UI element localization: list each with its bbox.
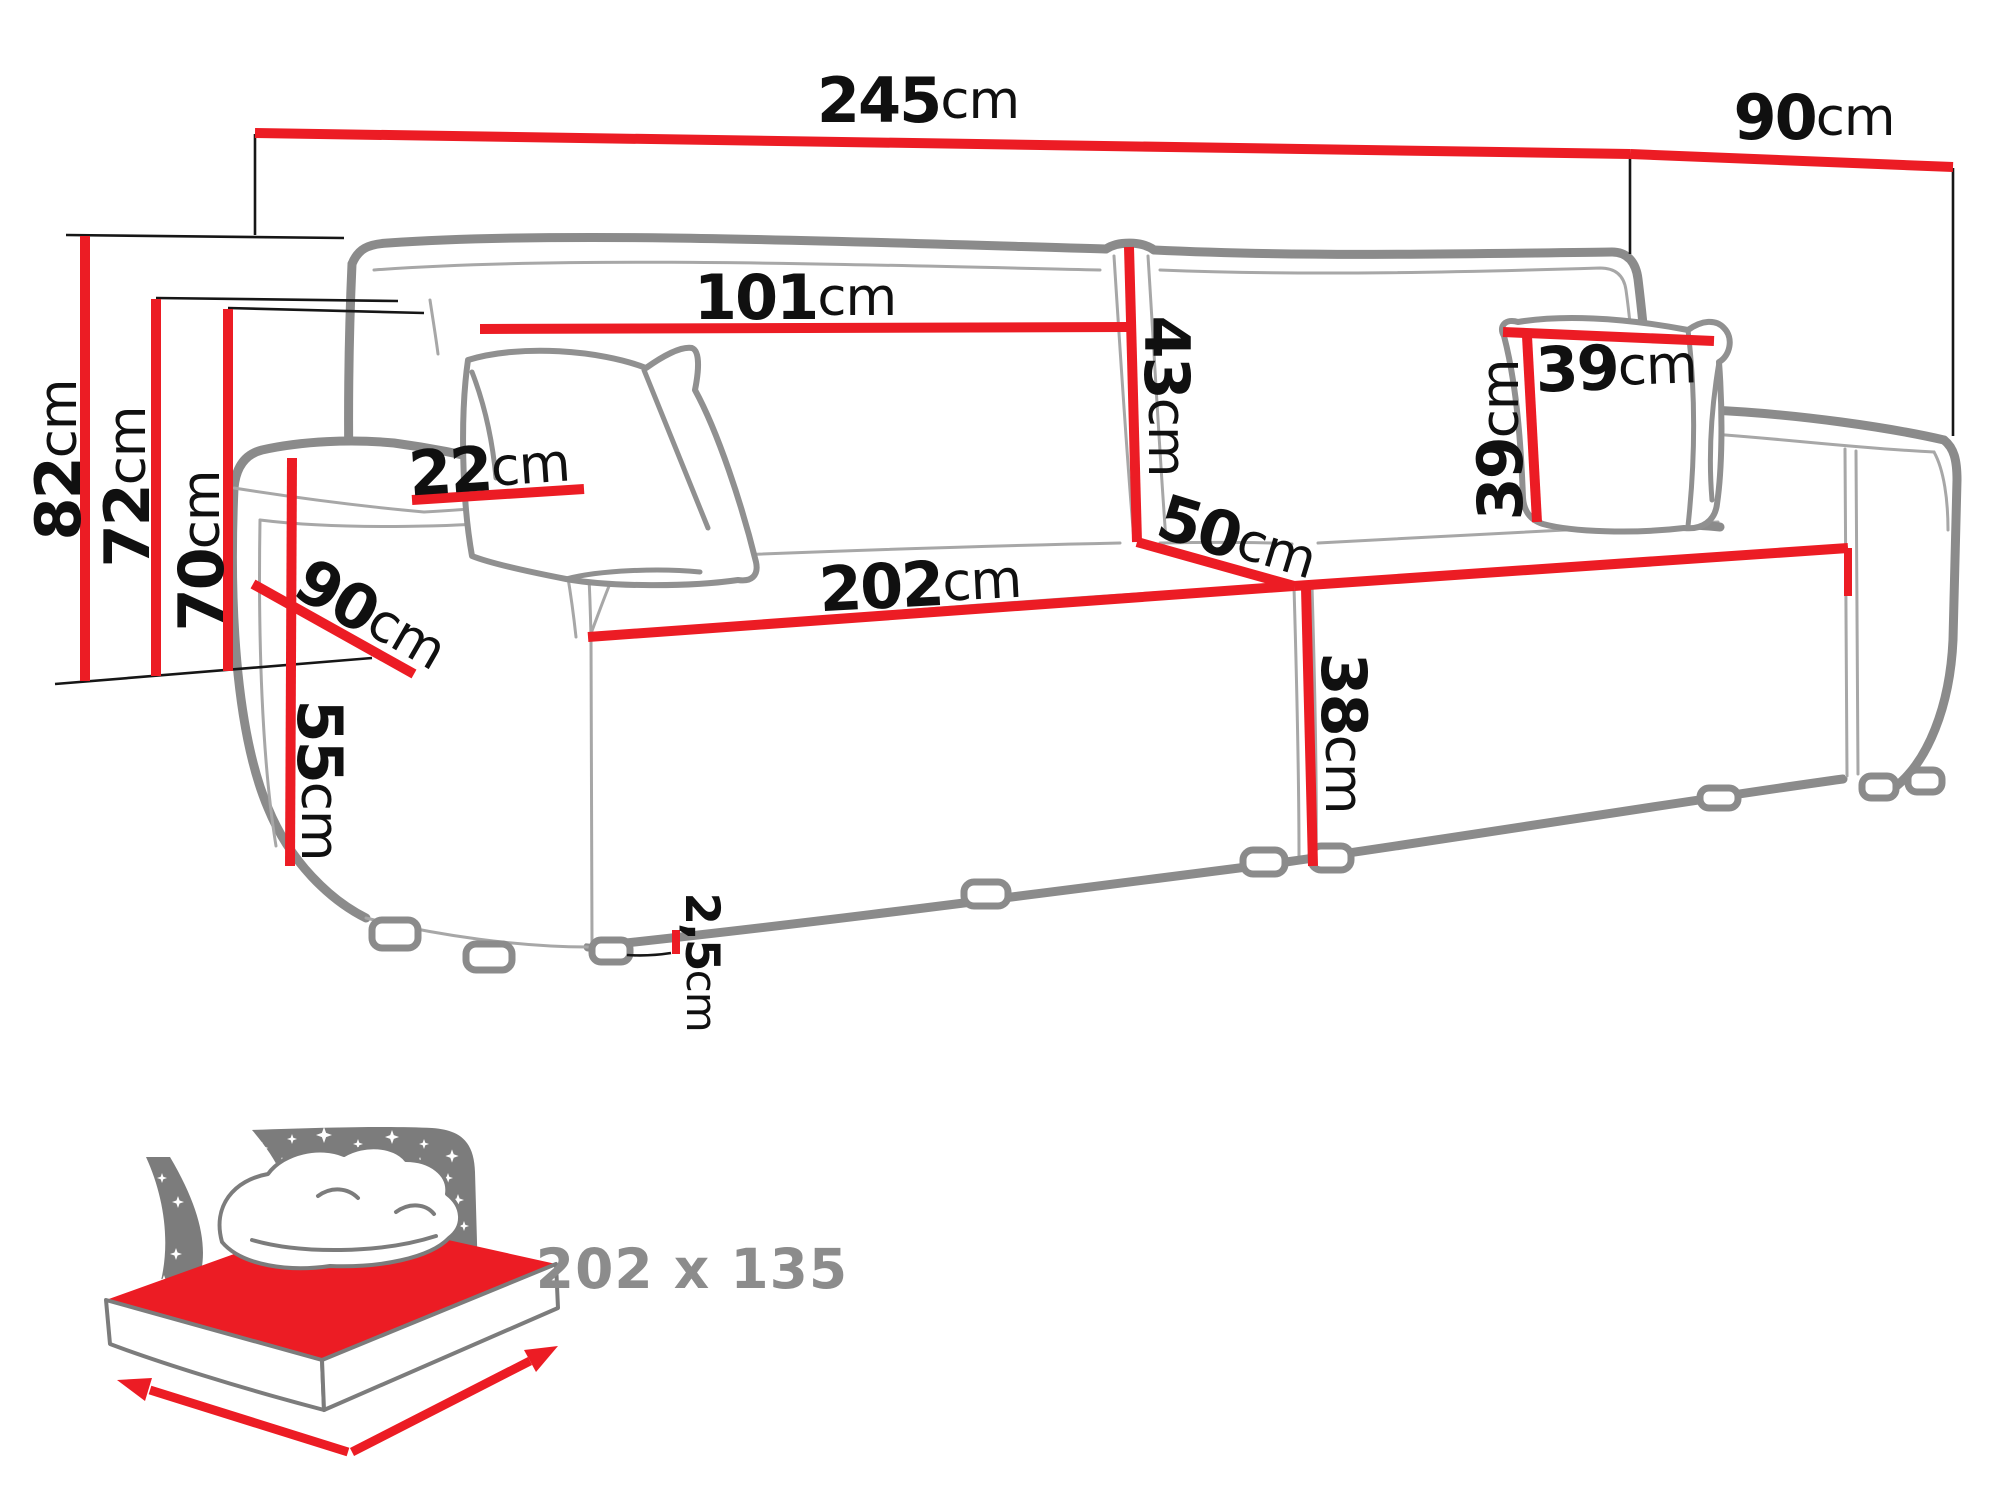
dim-backrest-height-label: 72cm [91,406,164,567]
dim-total-depth: 90cm [1630,81,1953,168]
sofa-foot [372,920,418,948]
dim-back-cushion-height-label: 43cm [1131,315,1204,476]
sofa-seat [588,505,1851,947]
bedding-icon [220,1147,460,1268]
sofa-foot [1862,776,1896,798]
dim-backrest-width-label: 101cm [694,261,896,334]
sofa-foot [1700,788,1738,808]
dim-pillow-height-label: 39cm [1464,359,1537,520]
sofa-foot [1243,850,1285,874]
arrow-width-head-icon [524,1346,558,1372]
dim-back-height-label: 70cm [165,470,238,631]
sofa-foot [466,944,512,970]
sleeping-function-icon: 202 x 135 [106,1127,848,1452]
sleeping-area-label: 202 x 135 [536,1237,848,1301]
dim-back-height: 70cm [165,309,238,671]
dim-total-depth-label: 90cm [1733,81,1894,154]
star-icon [156,1224,165,1233]
sofa-dimension-diagram: 245cm 90cm 101cm 43cm 50cm 202cm 38cm 22… [0,0,2000,1500]
dim-overall-height-label: 82cm [22,379,95,540]
dim-armrest-height-label: 55cm [284,699,357,860]
dim-total-width: 245cm [255,64,1630,155]
dim-legs-height-label: 2,5cm [675,892,730,1031]
dim-overall-height: 82cm [22,236,95,681]
dim-total-width-label: 245cm [817,64,1019,137]
dim-total-width-line [255,133,1630,154]
sofa-foot [964,882,1008,906]
dim-pillow-width-label: 39cm [1534,328,1698,407]
sofa-foot [592,940,630,962]
dim-backrest-height: 72cm [91,299,164,676]
dim-seat-front-height-label: 38cm [1308,652,1381,813]
arrow-length-head-icon [117,1378,152,1401]
dim-legs-height: 2,5cm [675,892,730,1031]
sofa-foot [1908,770,1942,792]
diagram-canvas: 245cm 90cm 101cm 43cm 50cm 202cm 38cm 22… [0,0,2000,1500]
dim-pillow-height: 39cm [1464,336,1538,522]
dim-total-depth-line [1630,154,1953,167]
star-icon [246,1164,255,1173]
